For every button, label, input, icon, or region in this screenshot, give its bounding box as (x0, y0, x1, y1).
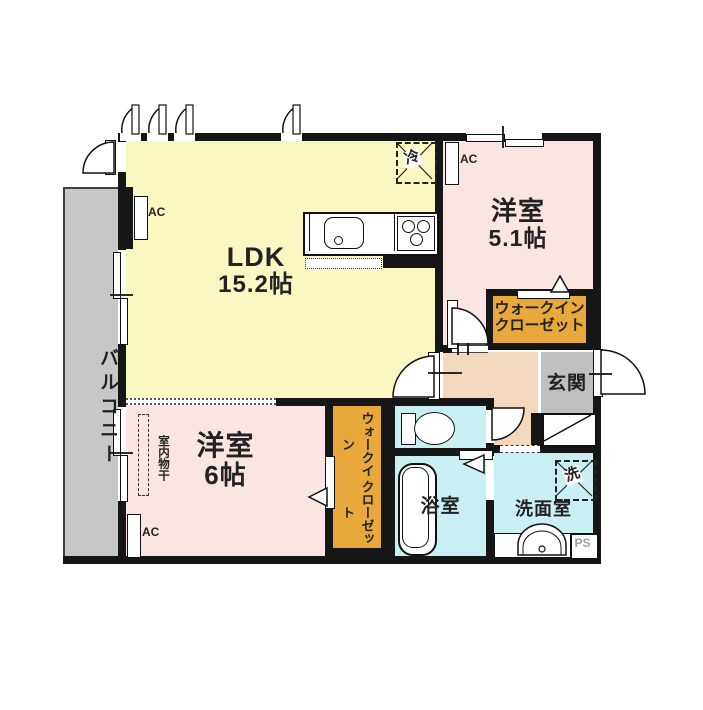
closet-label-line: ウォークイン (486, 301, 593, 318)
ldk-door-leaf (428, 352, 440, 400)
stove-burner (417, 220, 430, 233)
washroom-opening (500, 445, 540, 453)
bathroom-door-leaf (459, 450, 493, 460)
wall-shoebox-left (531, 413, 542, 445)
window-gap-4 (281, 133, 302, 141)
walkin-closet-b-label: ウォークイン クローゼット (333, 410, 381, 546)
toilet-door-gap (486, 410, 494, 443)
closet-label-line: ウォークイン (338, 410, 377, 478)
bathroom-label: 浴室 (395, 496, 486, 517)
ac-unit-bedroom-b (127, 514, 141, 558)
pipe-space-label: PS (570, 537, 595, 550)
walkin-closet-a-label: ウォークイン クローゼット (486, 301, 593, 335)
corner-window-leaf (105, 140, 116, 175)
ac-unit-bedroom-a (445, 142, 459, 185)
closet-label-line: クローゼット (338, 478, 377, 546)
ac-label-bedroom-a: AC (460, 153, 477, 166)
casement-window-leaf (132, 105, 300, 134)
window-gap-corner (118, 142, 126, 172)
bedroom-a-label: 洋室 5.1帖 (443, 197, 593, 252)
indoor-drying-label: 室内物干 (151, 416, 169, 500)
closet-a-door-leaf (517, 290, 570, 299)
basin-counter (494, 533, 572, 558)
ac-label-bedroom-b: AC (142, 526, 159, 539)
room-name: 洋室 (443, 197, 593, 226)
sliding-partition-track (126, 398, 276, 405)
ac-label-ldk: AC (148, 206, 165, 219)
entrance-door-leaf (593, 349, 603, 397)
window-panel (505, 139, 544, 147)
hallway-area-upper (443, 352, 538, 398)
bedroom-a-door-leaf (447, 300, 458, 349)
window-gap-2 (147, 133, 168, 141)
room-size: 15.2帖 (116, 272, 396, 299)
window-panel (466, 134, 505, 142)
bathroom-door-gap (486, 456, 494, 500)
wall-toilet-top (395, 398, 494, 406)
balcony-label: バルコニー (63, 308, 118, 508)
wall-ac-pillar (118, 187, 133, 249)
window-gap-3 (174, 133, 195, 141)
closet-label-line: クローゼット (486, 318, 593, 335)
stove-burner (410, 233, 423, 246)
washroom-label: 洗面室 (494, 499, 593, 519)
entrance-label: 玄関 (541, 373, 593, 394)
stove-burner (402, 220, 415, 233)
floor-plan: LDK 15.2帖 洋室 5.1帖 洋室 6帖 バルコニー ウォークイン クロー… (0, 0, 703, 710)
room-name: LDK (116, 242, 396, 272)
ldk-label: LDK 15.2帖 (116, 242, 396, 299)
casement-window-icon (122, 106, 297, 133)
room-size: 5.1帖 (443, 226, 593, 252)
window-panel (120, 298, 128, 345)
window-gap-1 (120, 133, 141, 141)
shoe-cabinet (542, 413, 597, 447)
ac-unit-ldk (134, 196, 148, 240)
wall-bedroom-b-top (276, 398, 325, 406)
toilet-bowl (414, 412, 455, 445)
entrance-door-swing (601, 350, 645, 394)
wall-bath-washroom (486, 500, 494, 556)
